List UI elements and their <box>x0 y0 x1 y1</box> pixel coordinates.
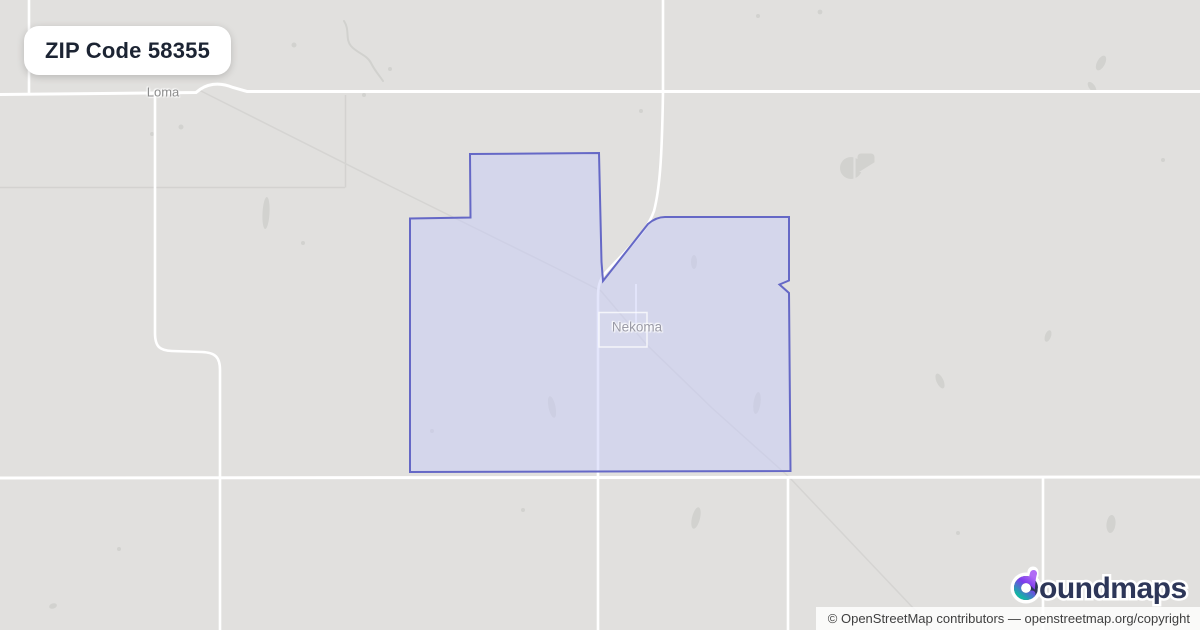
map-canvas[interactable] <box>0 0 1200 630</box>
road-west <box>155 94 220 630</box>
admin-boundary-lines <box>0 95 346 188</box>
logo-wordmark: oundmaps <box>1039 572 1187 605</box>
map-screenshot: ZIP Code 58355 Loma Nekoma oundmaps <box>0 0 1200 630</box>
road-horizontal-north <box>0 84 1200 94</box>
brand-logo-svg: oundmaps <box>995 560 1190 610</box>
pond-cluster <box>840 152 875 182</box>
stream-line <box>344 21 383 81</box>
zip-code-badge: ZIP Code 58355 <box>24 26 231 75</box>
town-label-nekoma: Nekoma <box>612 320 662 335</box>
attribution-link[interactable]: © OpenStreetMap contributors — openstree… <box>828 611 1190 626</box>
town-label-loma: Loma <box>147 85 180 100</box>
road-horizontal-south <box>0 477 1200 478</box>
zip-code-badge-label: ZIP Code 58355 <box>45 38 210 64</box>
attribution-bar: © OpenStreetMap contributors — openstree… <box>816 607 1200 630</box>
